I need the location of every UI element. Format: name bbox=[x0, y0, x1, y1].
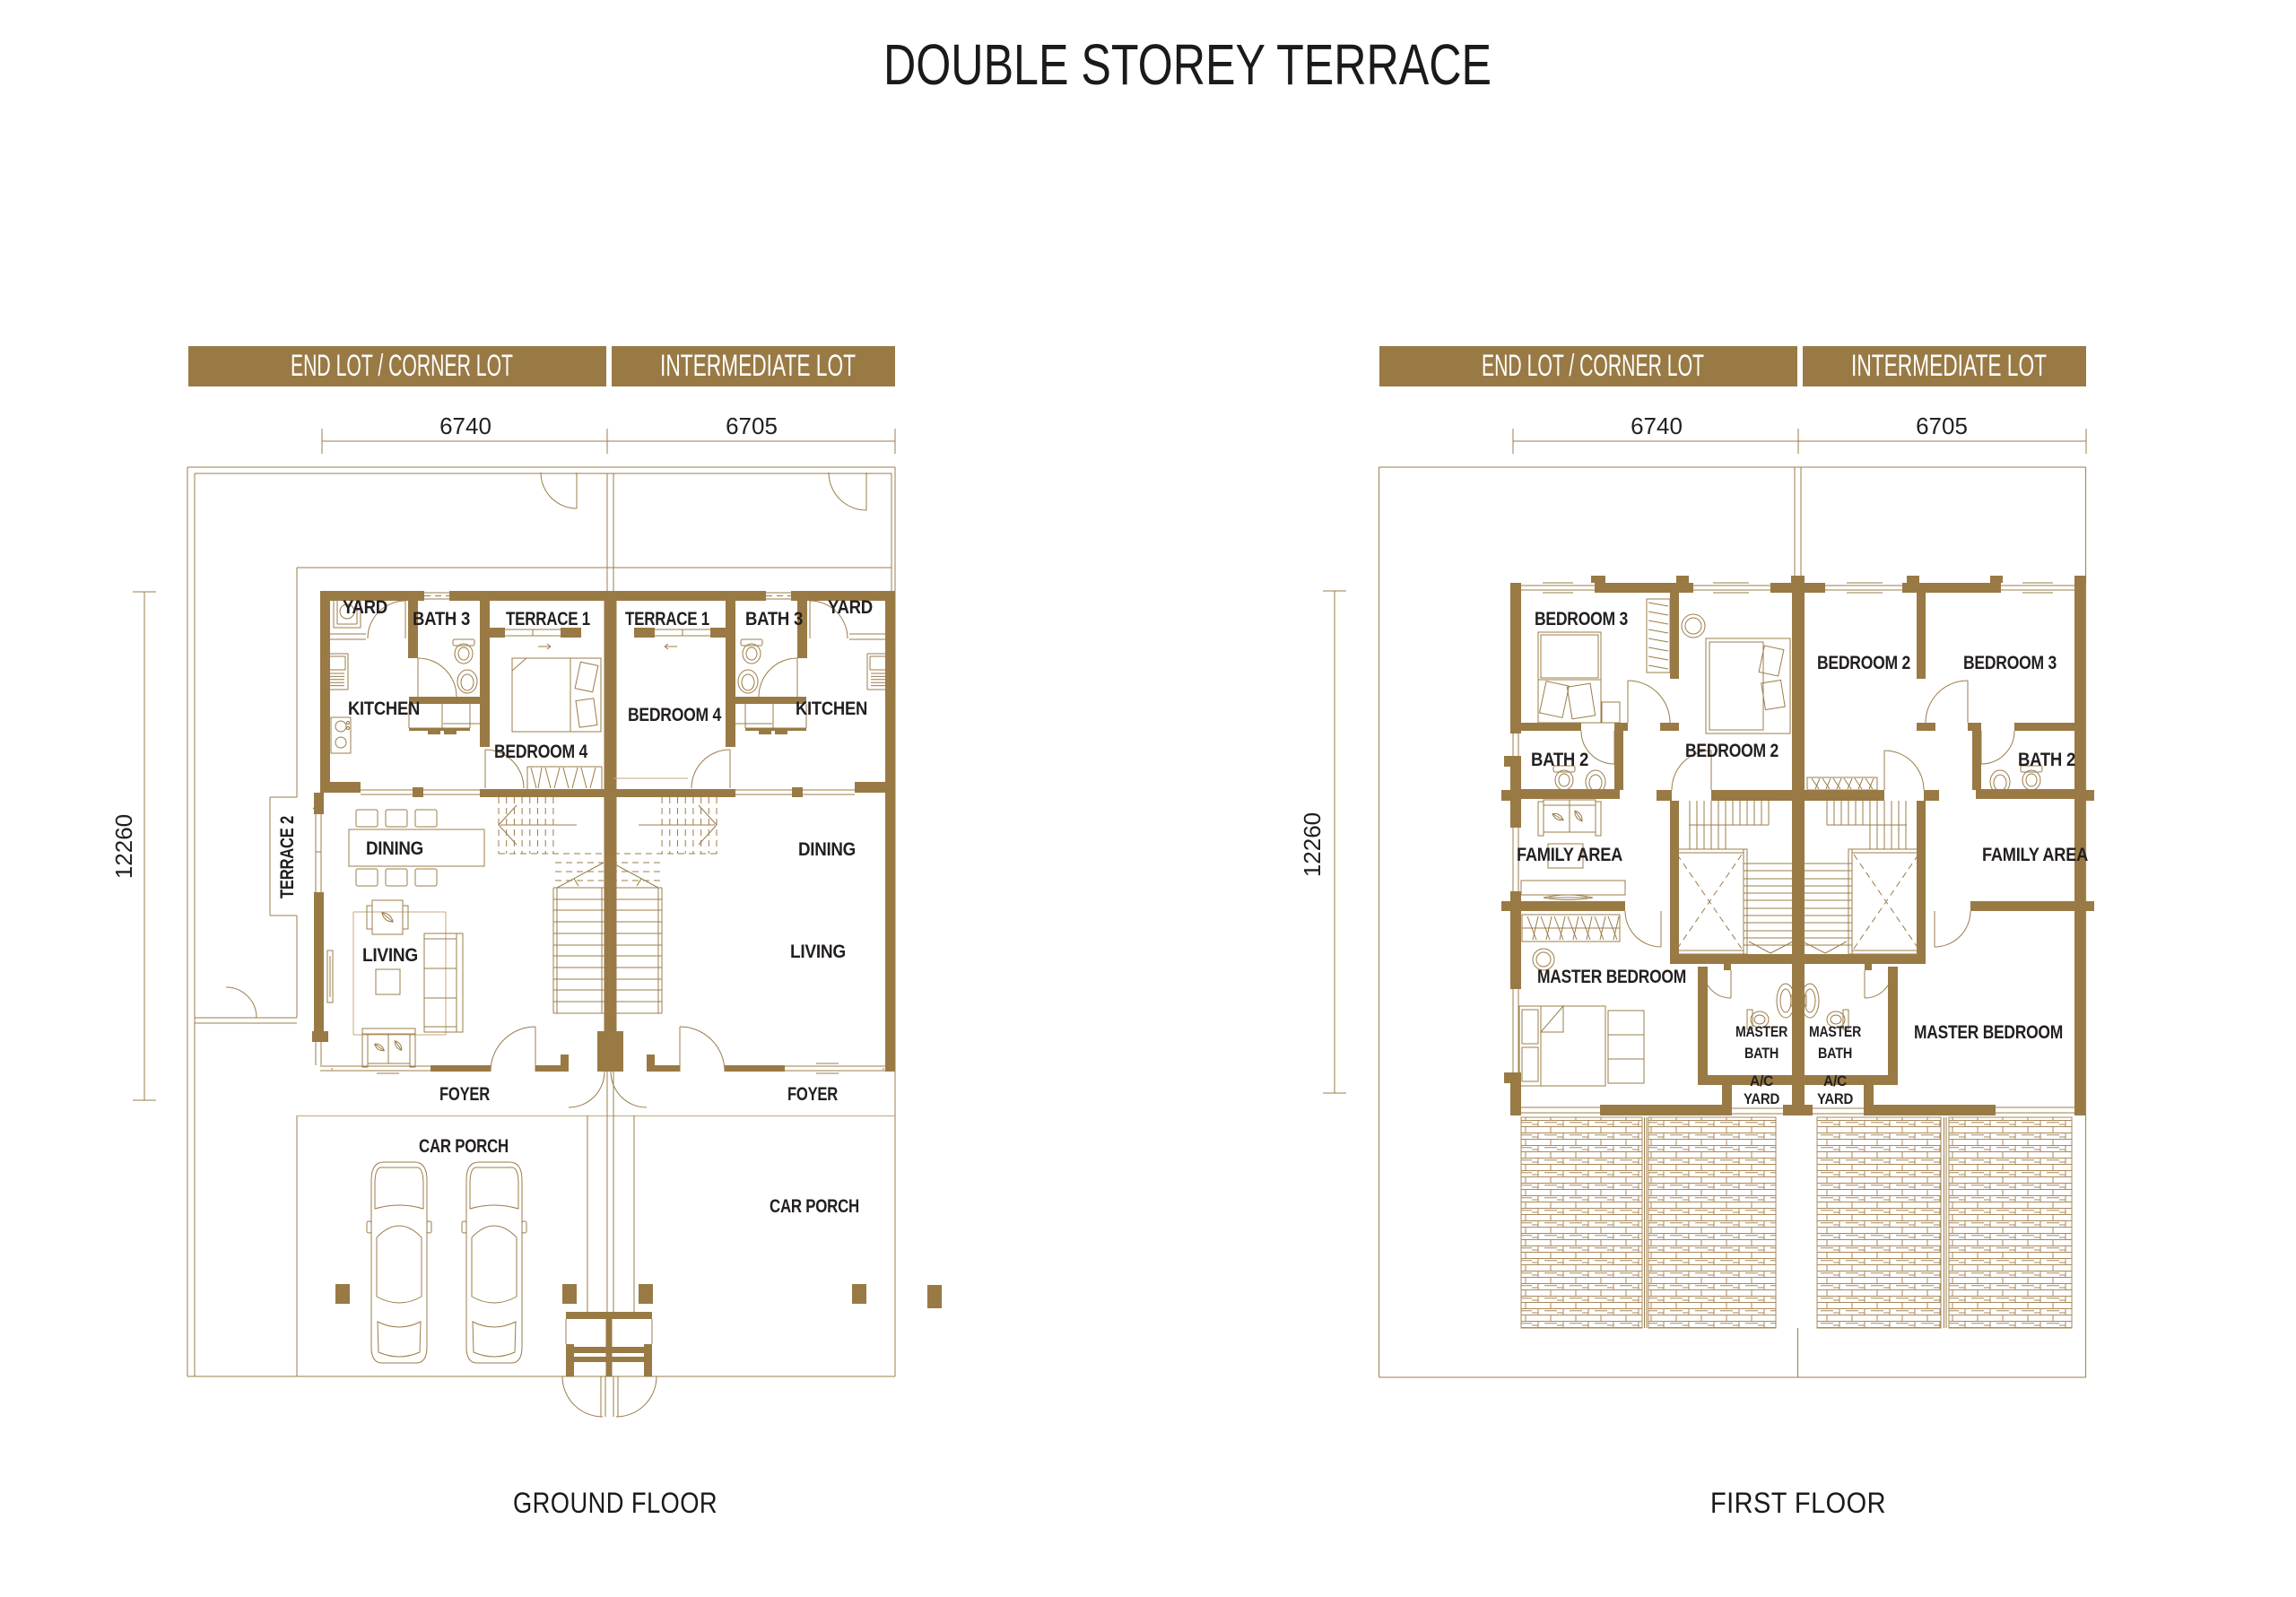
svg-text:LIVING: LIVING bbox=[790, 942, 846, 962]
svg-text:MASTER BEDROOM: MASTER BEDROOM bbox=[1537, 967, 1686, 987]
svg-text:YARD: YARD bbox=[343, 597, 387, 618]
svg-text:BEDROOM 2: BEDROOM 2 bbox=[1817, 653, 1910, 673]
svg-text:DINING: DINING bbox=[366, 838, 423, 859]
svg-text:CAR PORCH: CAR PORCH bbox=[419, 1136, 509, 1157]
svg-text:BATH 3: BATH 3 bbox=[745, 609, 803, 629]
svg-text:MASTER BEDROOM: MASTER BEDROOM bbox=[1914, 1022, 2063, 1043]
svg-text:END LOT / CORNER LOT: END LOT / CORNER LOT bbox=[1482, 349, 1704, 383]
svg-text:12260: 12260 bbox=[1299, 812, 1326, 877]
svg-text:KITCHEN: KITCHEN bbox=[796, 699, 867, 719]
svg-text:BATH: BATH bbox=[1744, 1045, 1779, 1062]
svg-text:GROUND FLOOR: GROUND FLOOR bbox=[513, 1487, 717, 1519]
svg-text:YARD: YARD bbox=[1744, 1090, 1779, 1107]
svg-text:BEDROOM 3: BEDROOM 3 bbox=[1963, 653, 2057, 673]
svg-text:6705: 6705 bbox=[1916, 412, 1968, 439]
svg-text:BATH: BATH bbox=[1818, 1045, 1852, 1062]
svg-text:12260: 12260 bbox=[110, 814, 137, 879]
svg-text:MASTER: MASTER bbox=[1735, 1023, 1787, 1040]
svg-text:FOYER: FOYER bbox=[439, 1084, 490, 1105]
svg-text:FAMILY AREA: FAMILY AREA bbox=[1517, 845, 1622, 865]
svg-text:BEDROOM 4: BEDROOM 4 bbox=[494, 742, 588, 762]
svg-text:TERRACE 1: TERRACE 1 bbox=[506, 609, 590, 629]
svg-text:YARD: YARD bbox=[1817, 1090, 1853, 1107]
svg-text:BEDROOM 3: BEDROOM 3 bbox=[1535, 609, 1628, 629]
svg-text:FOYER: FOYER bbox=[787, 1084, 838, 1105]
svg-text:TERRACE 1: TERRACE 1 bbox=[625, 609, 709, 629]
svg-text:KITCHEN: KITCHEN bbox=[348, 699, 420, 719]
svg-text:6740: 6740 bbox=[439, 412, 491, 439]
svg-text:FAMILY AREA: FAMILY AREA bbox=[1982, 845, 2088, 865]
svg-text:BATH 2: BATH 2 bbox=[2018, 750, 2075, 770]
svg-text:BATH 3: BATH 3 bbox=[413, 609, 470, 629]
svg-text:LIVING: LIVING bbox=[362, 945, 418, 966]
svg-text:MASTER: MASTER bbox=[1809, 1023, 1861, 1040]
svg-text:TERRACE 2: TERRACE 2 bbox=[277, 816, 298, 898]
svg-text:YARD: YARD bbox=[828, 597, 873, 618]
svg-text:A/C: A/C bbox=[1750, 1072, 1773, 1089]
svg-text:A/C: A/C bbox=[1823, 1072, 1847, 1089]
svg-text:6705: 6705 bbox=[726, 412, 778, 439]
svg-text:FIRST FLOOR: FIRST FLOOR bbox=[1710, 1487, 1886, 1519]
svg-text:BEDROOM 2: BEDROOM 2 bbox=[1685, 741, 1779, 761]
svg-text:INTERMEDIATE LOT: INTERMEDIATE LOT bbox=[660, 349, 856, 383]
svg-text:BEDROOM 4: BEDROOM 4 bbox=[628, 705, 722, 725]
svg-text:BATH 2: BATH 2 bbox=[1531, 750, 1588, 770]
svg-text:DINING: DINING bbox=[798, 839, 856, 860]
svg-text:INTERMEDIATE LOT: INTERMEDIATE LOT bbox=[1851, 349, 2047, 383]
svg-text:CAR PORCH: CAR PORCH bbox=[770, 1196, 859, 1217]
svg-text:6740: 6740 bbox=[1631, 412, 1683, 439]
svg-text:DOUBLE STOREY TERRACE: DOUBLE STOREY TERRACE bbox=[883, 32, 1492, 97]
svg-text:END LOT / CORNER LOT: END LOT / CORNER LOT bbox=[291, 349, 513, 383]
